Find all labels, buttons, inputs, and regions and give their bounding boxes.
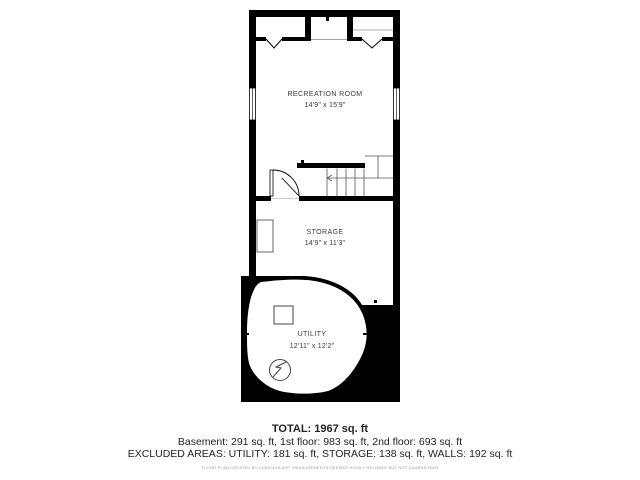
disclaimer-text: FLOOR PLAN CREATED BY CUBICASA APP. MEAS… (0, 465, 640, 470)
water-heater-icon (270, 360, 291, 381)
wall-mid-right (299, 196, 400, 201)
wall-closet-divider-right (347, 17, 353, 41)
wall-closet-right-a (353, 37, 362, 41)
wall-left-upper (249, 10, 256, 88)
wall-closet-left-b (282, 37, 305, 41)
room-dims-storage: 14'9" x 11'3" (305, 240, 346, 247)
room-label-utility: UTILITY (298, 331, 327, 338)
door-frame (270, 170, 273, 196)
storage-fixture (257, 220, 273, 252)
furnace-icon (274, 306, 293, 324)
wall-right-upper (393, 10, 400, 88)
room-label-recreation: RECREATION ROOM (287, 91, 362, 98)
tick-utility-right (363, 333, 367, 335)
floor-plan-drawing: RECREATION ROOM 14'9" x 15'9" STORAGE 14… (0, 0, 640, 480)
wall-right-lower (393, 120, 400, 305)
wall-stair-top (297, 163, 365, 168)
tick-stair (301, 160, 304, 163)
room-label-storage: STORAGE (307, 229, 344, 236)
total-area-text: TOTAL: 1967 sq. ft (0, 423, 640, 436)
wall-mid-left (249, 196, 271, 201)
floor-plan-page: RECREATION ROOM 14'9" x 15'9" STORAGE 14… (0, 0, 640, 480)
floor-areas-text: Basement: 291 sq. ft, 1st floor: 983 sq.… (0, 436, 640, 448)
tick-storage-ext (374, 300, 377, 303)
excluded-areas-text: EXCLUDED AREAS: UTILITY: 181 sq. ft, STO… (0, 448, 640, 460)
tick-alcove (326, 17, 329, 21)
room-dims-utility: 12'11" x 12'2" (290, 343, 335, 350)
wall-closet-divider-left (305, 17, 311, 41)
bifold-door-left-icon (266, 39, 282, 48)
summary-block: TOTAL: 1967 sq. ft Basement: 291 sq. ft,… (0, 423, 640, 470)
tick-utility-bottom (328, 392, 331, 395)
wall-closet-right-b (382, 37, 393, 41)
door (270, 170, 299, 199)
bifold-door-right-icon (362, 39, 382, 48)
wall-top (249, 10, 400, 17)
room-dims-recreation: 14'9" x 15'9" (305, 102, 346, 109)
stairs-icon (327, 156, 393, 196)
wall-closet-left-a (256, 37, 266, 41)
door-leaf (282, 178, 299, 196)
tick-utility-left (245, 333, 249, 335)
